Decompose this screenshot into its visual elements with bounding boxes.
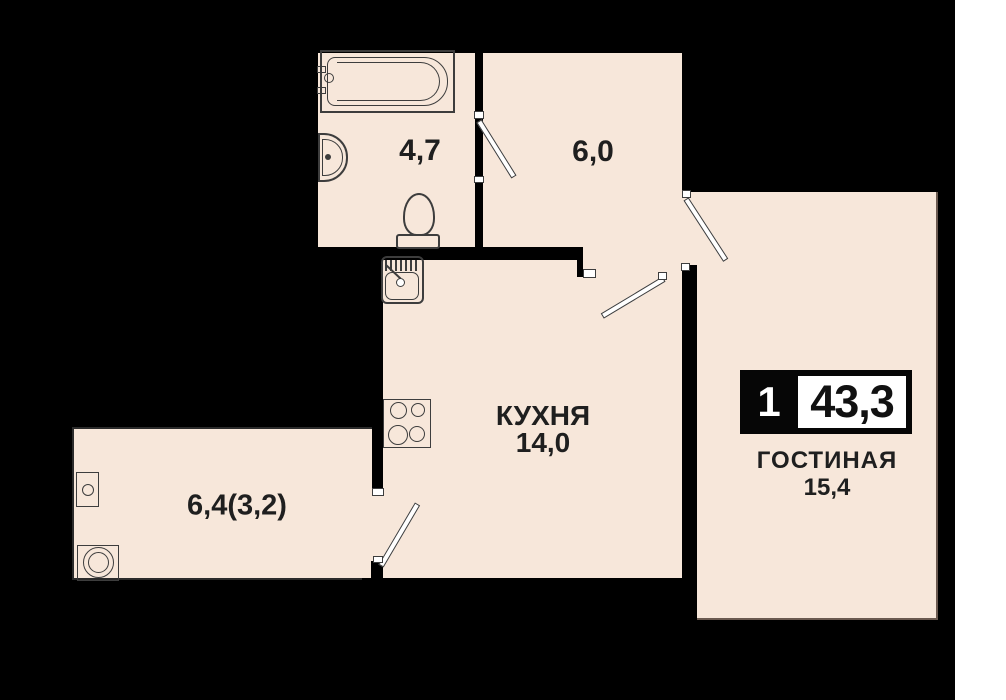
wall-end-cap (474, 111, 484, 119)
kitchen-sink-faucet-icon (396, 278, 405, 287)
wall-segment (682, 40, 697, 192)
badge-total-area: 43,3 (798, 376, 906, 428)
room-area-hallway: 6,0 (572, 135, 614, 169)
stove-burner (390, 402, 407, 419)
stove-burner (411, 403, 425, 417)
wall-segment (300, 247, 583, 260)
wall-segment (682, 265, 697, 578)
page-margin (955, 0, 1006, 700)
toilet-tank (396, 234, 440, 249)
room-area-kitchen: 14,0 (516, 427, 571, 459)
room-area-bathroom: 4,7 (399, 134, 441, 168)
wall-end-cap (373, 556, 383, 563)
washing-machine-drum-inner (88, 552, 109, 573)
bathtub-valve (317, 66, 326, 73)
wall-segment (475, 53, 483, 118)
wall-end-cap (658, 272, 667, 280)
wall-end-cap (583, 269, 596, 278)
wall-segment (362, 578, 682, 592)
wall-segment (372, 427, 383, 490)
badge-room-count: 1 (740, 378, 798, 426)
room-label-living: ГОСТИНАЯ (757, 447, 898, 475)
bathtub-valve (317, 87, 326, 94)
stove-burner (409, 426, 425, 442)
bathtub-inner-curve (337, 62, 440, 101)
bathtub-faucet-icon (324, 73, 334, 83)
wall-end-cap (474, 176, 484, 183)
bathroom-sink-faucet-icon (325, 154, 331, 160)
toilet-icon (403, 193, 435, 236)
apartment-badge: 1 43,3 (740, 370, 912, 434)
stove-burner (388, 425, 408, 445)
room-area-balcony: 6,4(3,2) (187, 490, 287, 523)
wall-end-cap (372, 488, 384, 496)
wall-end-cap (681, 263, 690, 271)
room-area-living: 15,4 (804, 474, 851, 502)
wall-segment (688, 180, 940, 192)
floor-plan: 4,7 6,0 КУХНЯ 14,0 ГОСТИНАЯ 15,4 6,4(3,2… (0, 0, 1006, 700)
wall-end-cap (682, 190, 691, 198)
wall-segment (475, 178, 483, 247)
balcony-door-opening (372, 496, 383, 561)
balcony-unit-dot (82, 484, 94, 496)
wall-segment (362, 247, 383, 427)
